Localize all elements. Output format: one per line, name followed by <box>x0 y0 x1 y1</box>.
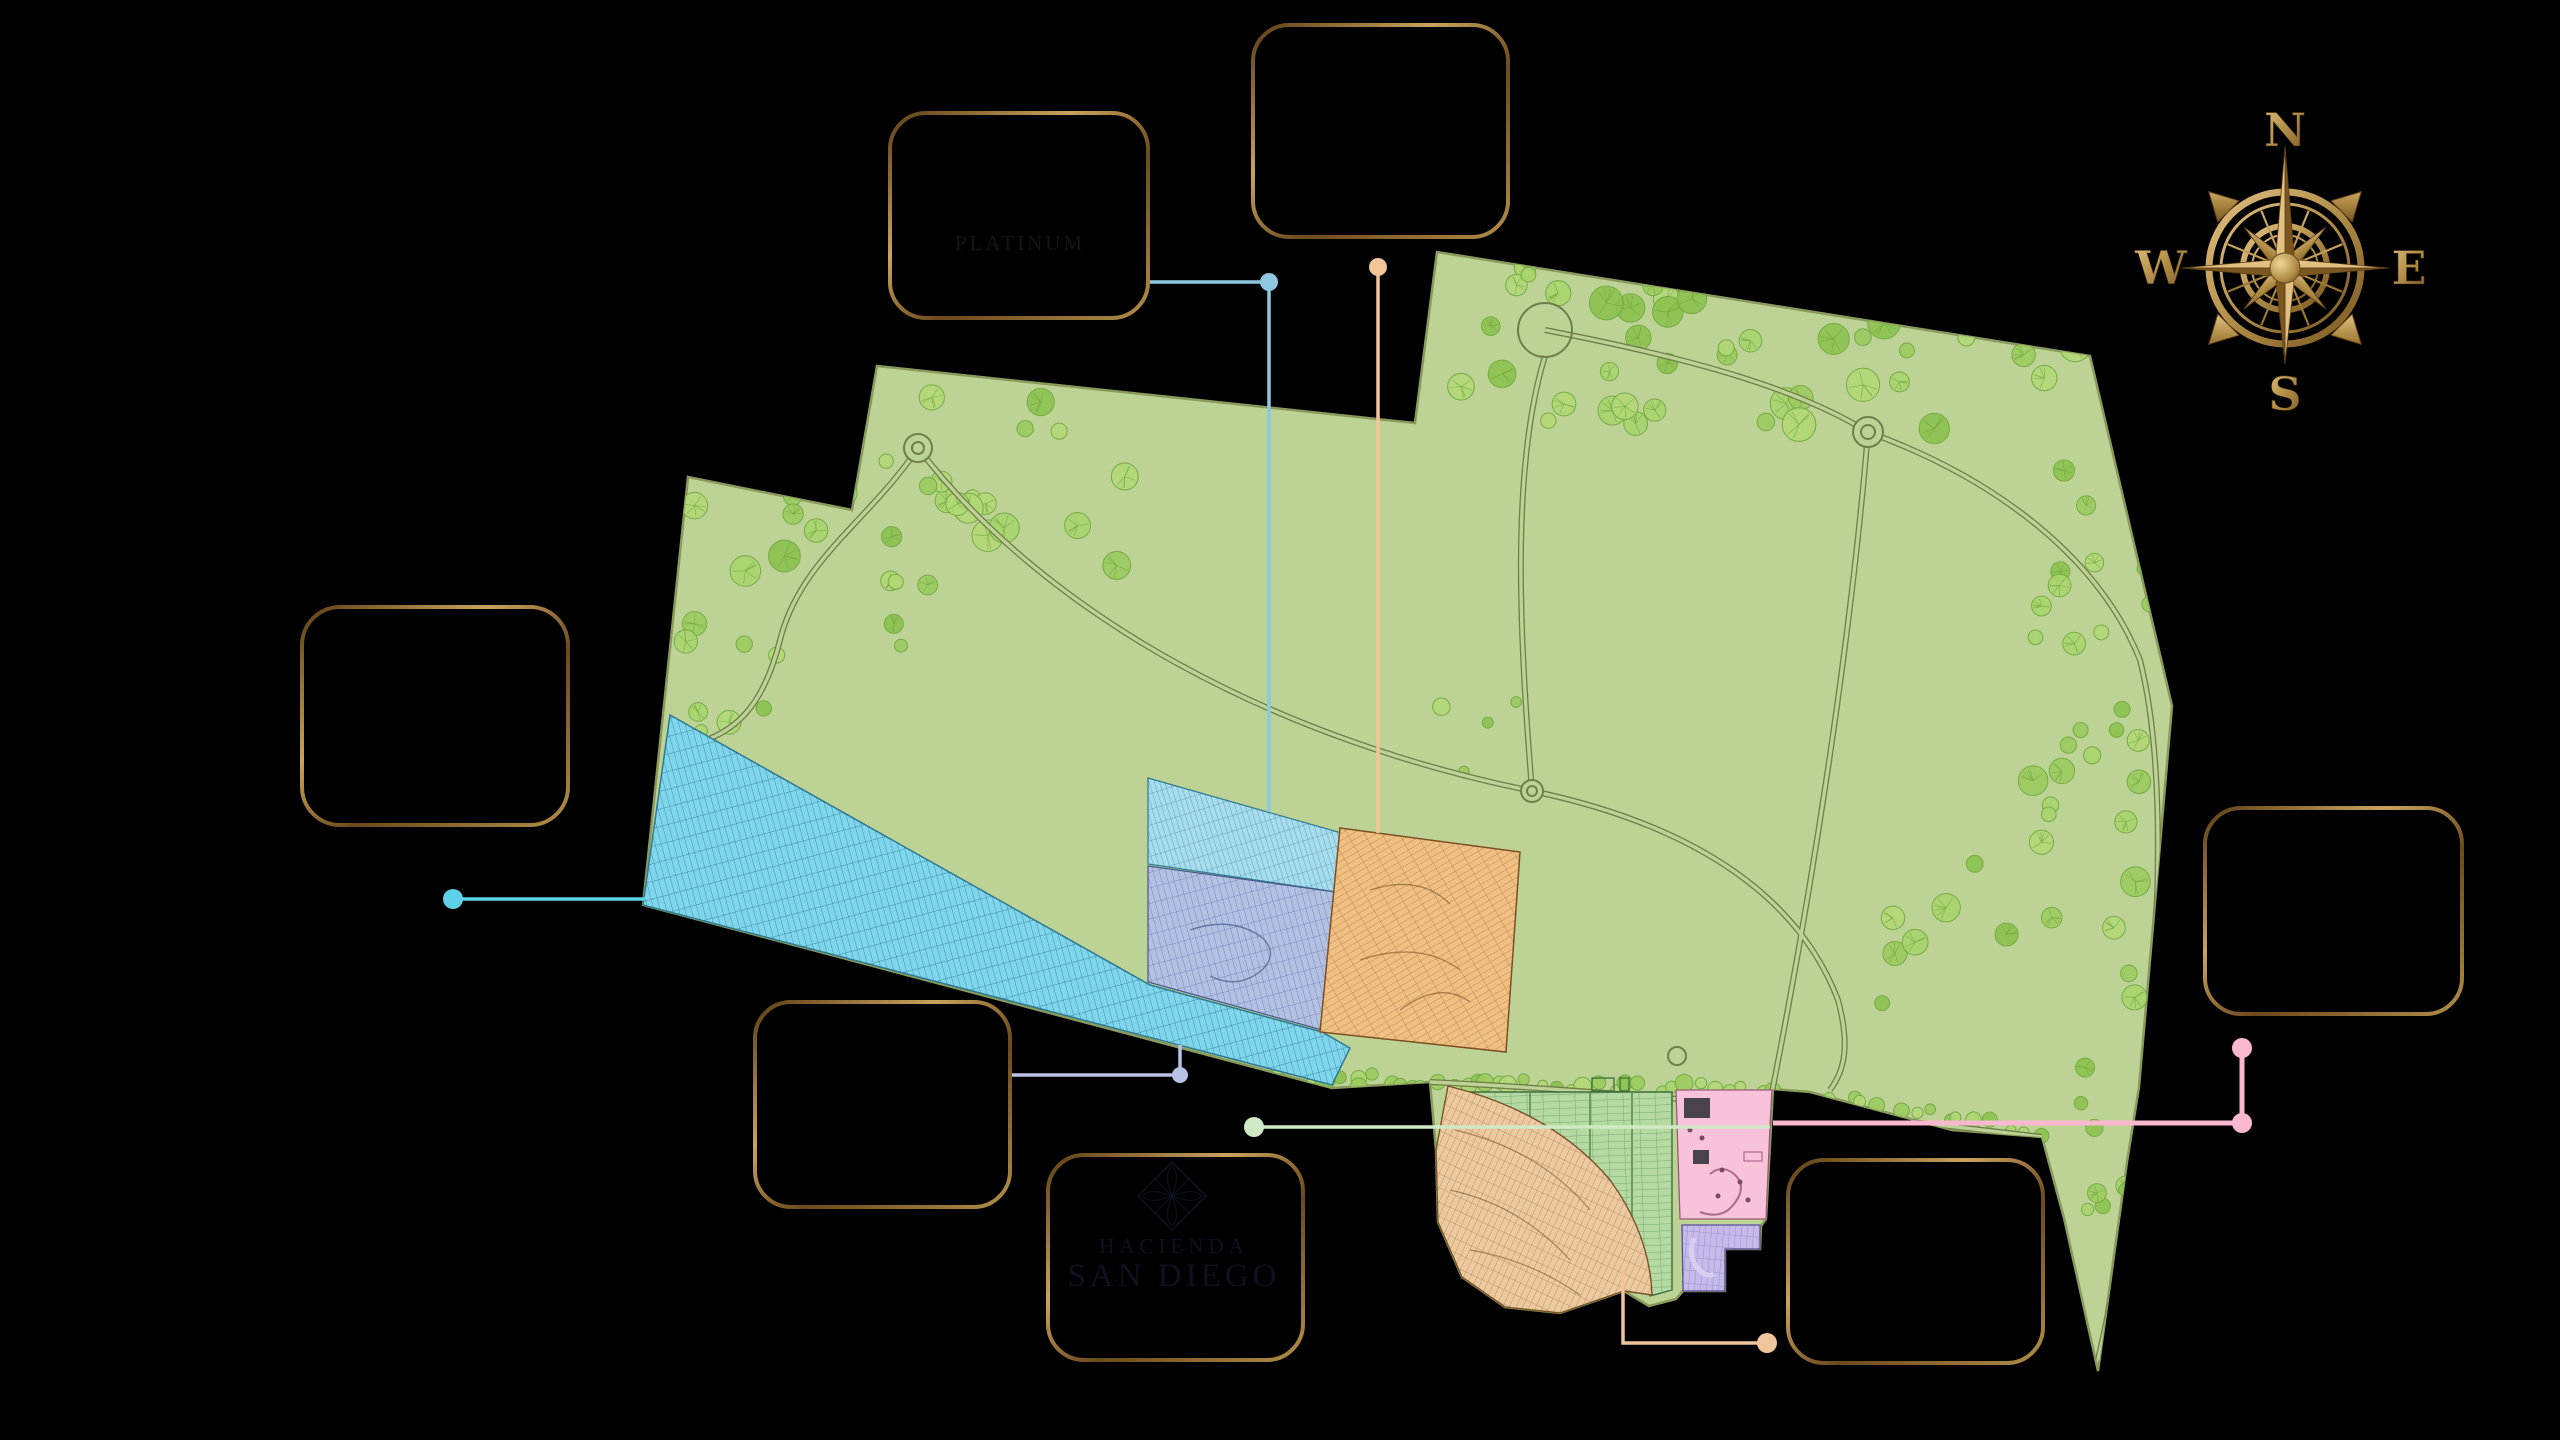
tree-icon <box>1739 329 1762 352</box>
tree-icon <box>2076 1058 2095 1077</box>
tree-icon <box>1488 360 1516 388</box>
tree-icon <box>1902 929 1928 955</box>
callout-box-left[interactable] <box>302 607 568 825</box>
tree-icon <box>2060 737 2076 753</box>
tree-icon <box>2063 632 2086 655</box>
tree-icon <box>1958 329 1975 346</box>
diamond-flower-icon <box>1138 1162 1206 1230</box>
tree-icon <box>1589 286 1623 320</box>
tree-icon <box>2122 985 2147 1010</box>
tree-icon <box>1966 855 1983 872</box>
tree-icon <box>1854 329 1871 346</box>
tree-icon <box>1881 906 1904 929</box>
compass-rose-icon: N S E W <box>2132 103 2437 421</box>
leader-peach-bottom-dot <box>1757 1333 1777 1353</box>
tree-icon <box>1875 996 1890 1011</box>
tree-icon <box>2114 701 2130 717</box>
tree-icon <box>1677 284 1707 314</box>
zone-orange[interactable] <box>1320 828 1520 1052</box>
tree-icon <box>1868 293 1885 310</box>
tree-icon <box>1846 368 1879 401</box>
tree-icon <box>2074 1097 2087 1110</box>
tree-icon <box>1103 551 1131 579</box>
tree-icon <box>1366 1068 1378 1080</box>
logo-line2: SAN DIEGO <box>1068 1258 1281 1294</box>
tree-icon <box>2094 625 2109 640</box>
zone-pink-amenity[interactable] <box>1676 1090 1772 1219</box>
tree-icon <box>2084 747 2101 764</box>
tree-icon <box>2053 460 2074 481</box>
leader-pale-green-dot <box>1244 1117 1264 1137</box>
tree-icon <box>1630 1076 1644 1090</box>
tree-icon <box>1757 413 1775 431</box>
tree-icon <box>1818 323 1849 354</box>
compass-north-label: N <box>2264 103 2306 157</box>
tree-icon <box>736 636 752 652</box>
tree-icon <box>2088 1184 2107 1203</box>
tree-icon <box>1111 463 1138 490</box>
tree-icon <box>2121 965 2138 982</box>
tree-icon <box>1718 340 1734 356</box>
tree-icon <box>1782 408 1816 442</box>
tree-icon <box>756 701 771 716</box>
tree-icon <box>2127 770 2151 794</box>
tree-icon <box>1546 281 1571 306</box>
tree-icon <box>1051 423 1067 439</box>
tree-icon <box>2060 331 2091 362</box>
tree-icon <box>1511 697 1522 708</box>
tree-icon <box>2041 907 2062 928</box>
project-logo: HACIENDA SAN DIEGO <box>1068 1162 1281 1294</box>
tree-icon <box>1912 1107 1923 1118</box>
leader-pink-dot-elbow <box>2232 1113 2252 1133</box>
platinum-label: PLATINUM <box>955 231 1085 255</box>
tree-icon <box>1644 399 1666 421</box>
tree-icon <box>1612 393 1639 420</box>
tree-icon <box>783 504 803 524</box>
master-plan-page: PLATINUM HACIENDA SAN DIEGO <box>0 0 2560 1440</box>
tree-icon <box>1433 698 1451 716</box>
tree-icon <box>1695 1077 1706 1088</box>
tree-icon <box>804 519 827 542</box>
callout-box-mid[interactable] <box>755 1002 1010 1207</box>
zone-purple[interactable] <box>1682 1225 1760 1291</box>
tree-icon <box>882 527 902 547</box>
tree-icon <box>2127 730 2149 752</box>
master-plan-map <box>636 252 2172 1371</box>
tree-icon <box>2077 496 2096 515</box>
tree-icon <box>888 574 903 589</box>
tree-icon <box>2028 630 2043 645</box>
tree-icon <box>1890 372 1910 392</box>
tree-icon <box>2103 916 2126 939</box>
tree-icon <box>2121 867 2151 897</box>
tree-icon <box>1541 413 1556 428</box>
leader-lavender <box>1012 1045 1180 1075</box>
tree-icon <box>636 530 666 560</box>
tree-icon <box>2049 758 2074 783</box>
tree-icon <box>2115 811 2137 833</box>
tree-icon <box>1518 1074 1529 1085</box>
tree-icon <box>1600 362 1618 380</box>
tree-icon <box>653 453 668 468</box>
tree-icon <box>894 639 907 652</box>
tree-icon <box>1482 717 1493 728</box>
tree-icon <box>2018 766 2048 796</box>
tree-icon <box>1995 923 2018 946</box>
tree-icon <box>2048 574 2071 597</box>
tree-icon <box>1521 267 1536 282</box>
compass-east-label: E <box>2391 241 2426 295</box>
tree-icon <box>2041 807 2056 822</box>
callout-box-right[interactable] <box>2205 808 2462 1014</box>
tree-icon <box>884 614 903 633</box>
tree-icon <box>1899 343 1914 358</box>
leader-peach-top-dot <box>1369 258 1387 276</box>
tree-icon <box>2085 553 2104 572</box>
tree-icon <box>1027 388 1054 415</box>
tree-icon <box>1552 392 1576 416</box>
tree-icon <box>1448 373 1475 400</box>
leader-lavender-dot <box>1172 1067 1188 1083</box>
compass-south-label: S <box>2268 367 2301 421</box>
tree-icon <box>1919 413 1949 443</box>
tree-icon <box>674 630 697 653</box>
tree-icon <box>689 703 708 722</box>
tree-icon <box>1481 317 1500 336</box>
logo-line1: HACIENDA <box>1099 1234 1249 1258</box>
tree-icon <box>1970 261 1996 287</box>
tree-icon <box>663 407 678 422</box>
tree-icon <box>1812 1097 1828 1113</box>
leader-steel-blue-dot <box>1260 273 1278 291</box>
tree-icon <box>2032 365 2057 390</box>
callout-box-top[interactable] <box>1253 25 1508 237</box>
tree-icon <box>1017 421 1033 437</box>
tree-icon <box>919 385 944 410</box>
tree-icon <box>1925 1104 1936 1115</box>
tree-icon <box>1065 513 1091 539</box>
tree-icon <box>2109 723 2124 738</box>
tree-icon <box>1932 894 1960 922</box>
tree-icon <box>768 540 800 572</box>
tree-icon <box>2007 307 2031 331</box>
tree-icon <box>730 556 761 587</box>
tree-icon <box>2130 449 2144 463</box>
tree-icon <box>785 426 806 447</box>
callout-box-platinum[interactable] <box>890 113 1148 318</box>
tree-icon <box>879 454 893 468</box>
tree-icon <box>2082 1203 2094 1215</box>
tree-icon <box>2029 830 2053 854</box>
callout-box-bottom-right[interactable] <box>1788 1160 2043 1363</box>
leader-cyan-dot <box>443 889 463 909</box>
tree-icon <box>724 422 741 439</box>
tree-icon <box>1956 270 1989 303</box>
tree-icon <box>2032 596 2052 616</box>
leader-pink-dot-top <box>2232 1038 2252 1058</box>
tree-icon <box>918 575 938 595</box>
tree-icon <box>919 477 937 495</box>
tree-icon <box>1888 282 1912 306</box>
compass-west-label: W <box>2134 241 2188 295</box>
master-plan-canvas: PLATINUM HACIENDA SAN DIEGO <box>0 0 2560 1440</box>
tree-icon <box>2073 723 2088 738</box>
